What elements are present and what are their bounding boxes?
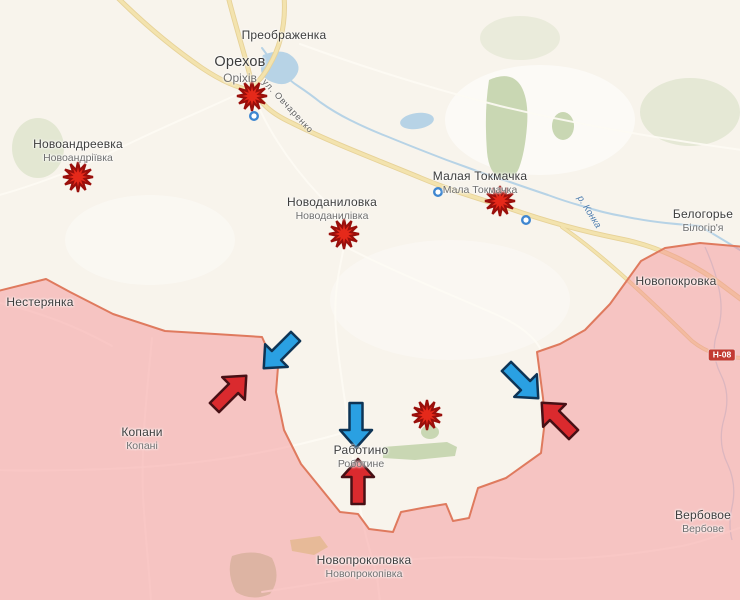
settlement-label: НовопрокоповкаНовопрокопівка xyxy=(317,553,412,580)
settlement-name: Нестерянка xyxy=(6,295,73,309)
war-map[interactable]: ул. Овчаренко р. Конка Н-08 Преображенка… xyxy=(0,0,740,600)
settlement-name: Малая Токмачка xyxy=(433,169,528,183)
settlement-name: Новоданиловка xyxy=(287,195,377,209)
settlement-label: БелогорьеБілогір'я xyxy=(673,207,733,234)
settlement-alt-name: Вербове xyxy=(675,523,731,535)
settlement-alt-name: Роботине xyxy=(334,458,389,470)
settlement-name: Новоандреевка xyxy=(33,137,123,151)
settlement-label: Преображенка xyxy=(242,28,327,42)
settlement-label: Малая ТокмачкаМала Токмачка xyxy=(433,169,528,196)
settlement-label: НоводаниловкаНоводанилівка xyxy=(287,195,377,222)
settlement-name: Преображенка xyxy=(242,28,327,42)
settlement-label: Нестерянка xyxy=(6,295,73,309)
settlement-name: Белогорье xyxy=(673,207,733,221)
settlement-name: Орехов xyxy=(214,54,265,70)
settlement-label: ОреховОріхів xyxy=(214,54,265,85)
settlement-label: Новопокровка xyxy=(636,274,717,288)
settlement-alt-name: Новоданилівка xyxy=(287,210,377,222)
settlement-name: Копани xyxy=(121,425,162,439)
settlement-label: НовоандреевкаНовоандріївка xyxy=(33,137,123,164)
settlement-name: Работино xyxy=(334,443,389,457)
settlement-alt-name: Оріхів xyxy=(214,71,265,85)
settlement-name: Новопокровка xyxy=(636,274,717,288)
settlement-label: РаботиноРоботине xyxy=(334,443,389,470)
road-shield: Н-08 xyxy=(708,349,736,362)
settlement-label: КопаниКопані xyxy=(121,425,162,452)
settlement-alt-name: Новопрокопівка xyxy=(317,568,412,580)
settlement-name: Вербовое xyxy=(675,508,731,522)
settlement-alt-name: Копані xyxy=(121,440,162,452)
river-name-label: р. Конка xyxy=(575,194,604,231)
settlement-alt-name: Мала Токмачка xyxy=(433,184,528,196)
settlement-name: Новопрокоповка xyxy=(317,553,412,567)
street-name-label: ул. Овчаренко xyxy=(260,77,315,135)
label-layer: ул. Овчаренко р. Конка Н-08 Преображенка… xyxy=(0,0,740,600)
settlement-label: ВербовоеВербове xyxy=(675,508,731,535)
settlement-alt-name: Білогір'я xyxy=(673,222,733,234)
settlement-alt-name: Новоандріївка xyxy=(33,152,123,164)
